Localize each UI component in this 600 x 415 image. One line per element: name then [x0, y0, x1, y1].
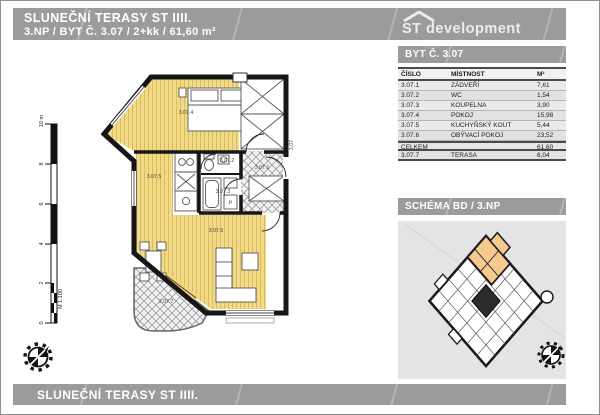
- table-total-row: CELKEM 61,60: [398, 141, 566, 151]
- compass-icon: [539, 343, 563, 367]
- room-label: 3.07.6: [209, 228, 224, 234]
- scale-tick: 0: [39, 321, 45, 324]
- compass-icon: [25, 344, 51, 370]
- table-row: 3.07.4 POKOJ 15,98: [398, 111, 566, 121]
- apartment-header-bar: BYT Č. 3.07: [398, 46, 566, 63]
- room-label: 3.07.4: [179, 110, 194, 116]
- col-mistnost: MÍSTNOST: [451, 69, 537, 79]
- scale-tick: 2: [39, 281, 45, 284]
- room-label: 3.07.1: [255, 165, 270, 171]
- col-m2: M²: [537, 69, 563, 79]
- st-development-logo: ST development: [402, 12, 552, 38]
- table-row: 3.07.6 OBÝVACÍ POKOJ 23,52: [398, 131, 566, 141]
- unit-door-label: 3.07: [289, 140, 295, 150]
- header-bar: SLUNEČNÍ TERASY ST IIII. 3.NP / BYT Č. 3…: [13, 8, 566, 40]
- table-row: 3.07.3 KOUPELNA 3,90: [398, 101, 566, 111]
- footer-title: SLUNEČNÍ TERASY ST IIII.: [37, 388, 198, 402]
- footer-bar: SLUNEČNÍ TERASY ST IIII.: [13, 384, 566, 405]
- scale-bar: 0 2 4 6 8 10 m M 1:100: [39, 114, 64, 324]
- schematic-drawing: [398, 221, 566, 379]
- floor-plan: 0 2 4 6 8 10 m M 1:100: [16, 61, 316, 381]
- scale-tick: 10 m: [39, 114, 45, 127]
- apartment-header-label: BYT Č. 3.07: [405, 49, 463, 60]
- sofa: [216, 248, 232, 290]
- room-label: 3.07.2: [220, 158, 235, 164]
- scale-tick: 6: [39, 202, 45, 205]
- logo-text: ST development: [402, 21, 521, 37]
- scale-label: M 1:100: [58, 289, 64, 309]
- table-row: 3.07.2 WC 1,54: [398, 91, 566, 101]
- room-label: 3.07.3: [216, 189, 231, 195]
- brochure-page: SLUNEČNÍ TERASY ST IIII. 3.NP / BYT Č. 3…: [0, 0, 600, 415]
- nightstand: [179, 88, 186, 97]
- project-title: SLUNEČNÍ TERASY ST IIII.: [24, 11, 192, 25]
- col-cislo: ČÍSLO: [401, 69, 451, 79]
- scale-tick: 8: [39, 162, 45, 165]
- table-row: 3.07.5 KUCHYŇSKÝ KOUT 5,44: [398, 121, 566, 131]
- table-header-row: ČÍSLO MÍSTNOST M²: [398, 69, 566, 81]
- table-row: 3.07.1 ZÁDVEŘÍ 7,61: [398, 81, 566, 91]
- schema-header-label: SCHÉMA BD / 3.NP: [405, 201, 501, 212]
- armchair: [242, 253, 258, 270]
- room-table: ČÍSLO MÍSTNOST M² 3.07.1 ZÁDVEŘÍ 7,61 3.…: [398, 67, 566, 161]
- table-terrace-row: 3.07.7 TERASA 6,04: [398, 151, 566, 161]
- apartment-subtitle: 3.NP / BYT Č. 3.07 / 2+kk / 61,60 m²: [24, 26, 216, 38]
- room-label: 3.07.5: [147, 174, 162, 180]
- building-schematic: [398, 221, 566, 379]
- scale-tick: 4: [39, 242, 45, 245]
- schema-header-bar: SCHÉMA BD / 3.NP: [398, 198, 566, 215]
- kitchen-floor: [136, 153, 173, 215]
- room-label: 3.07.7: [159, 299, 174, 305]
